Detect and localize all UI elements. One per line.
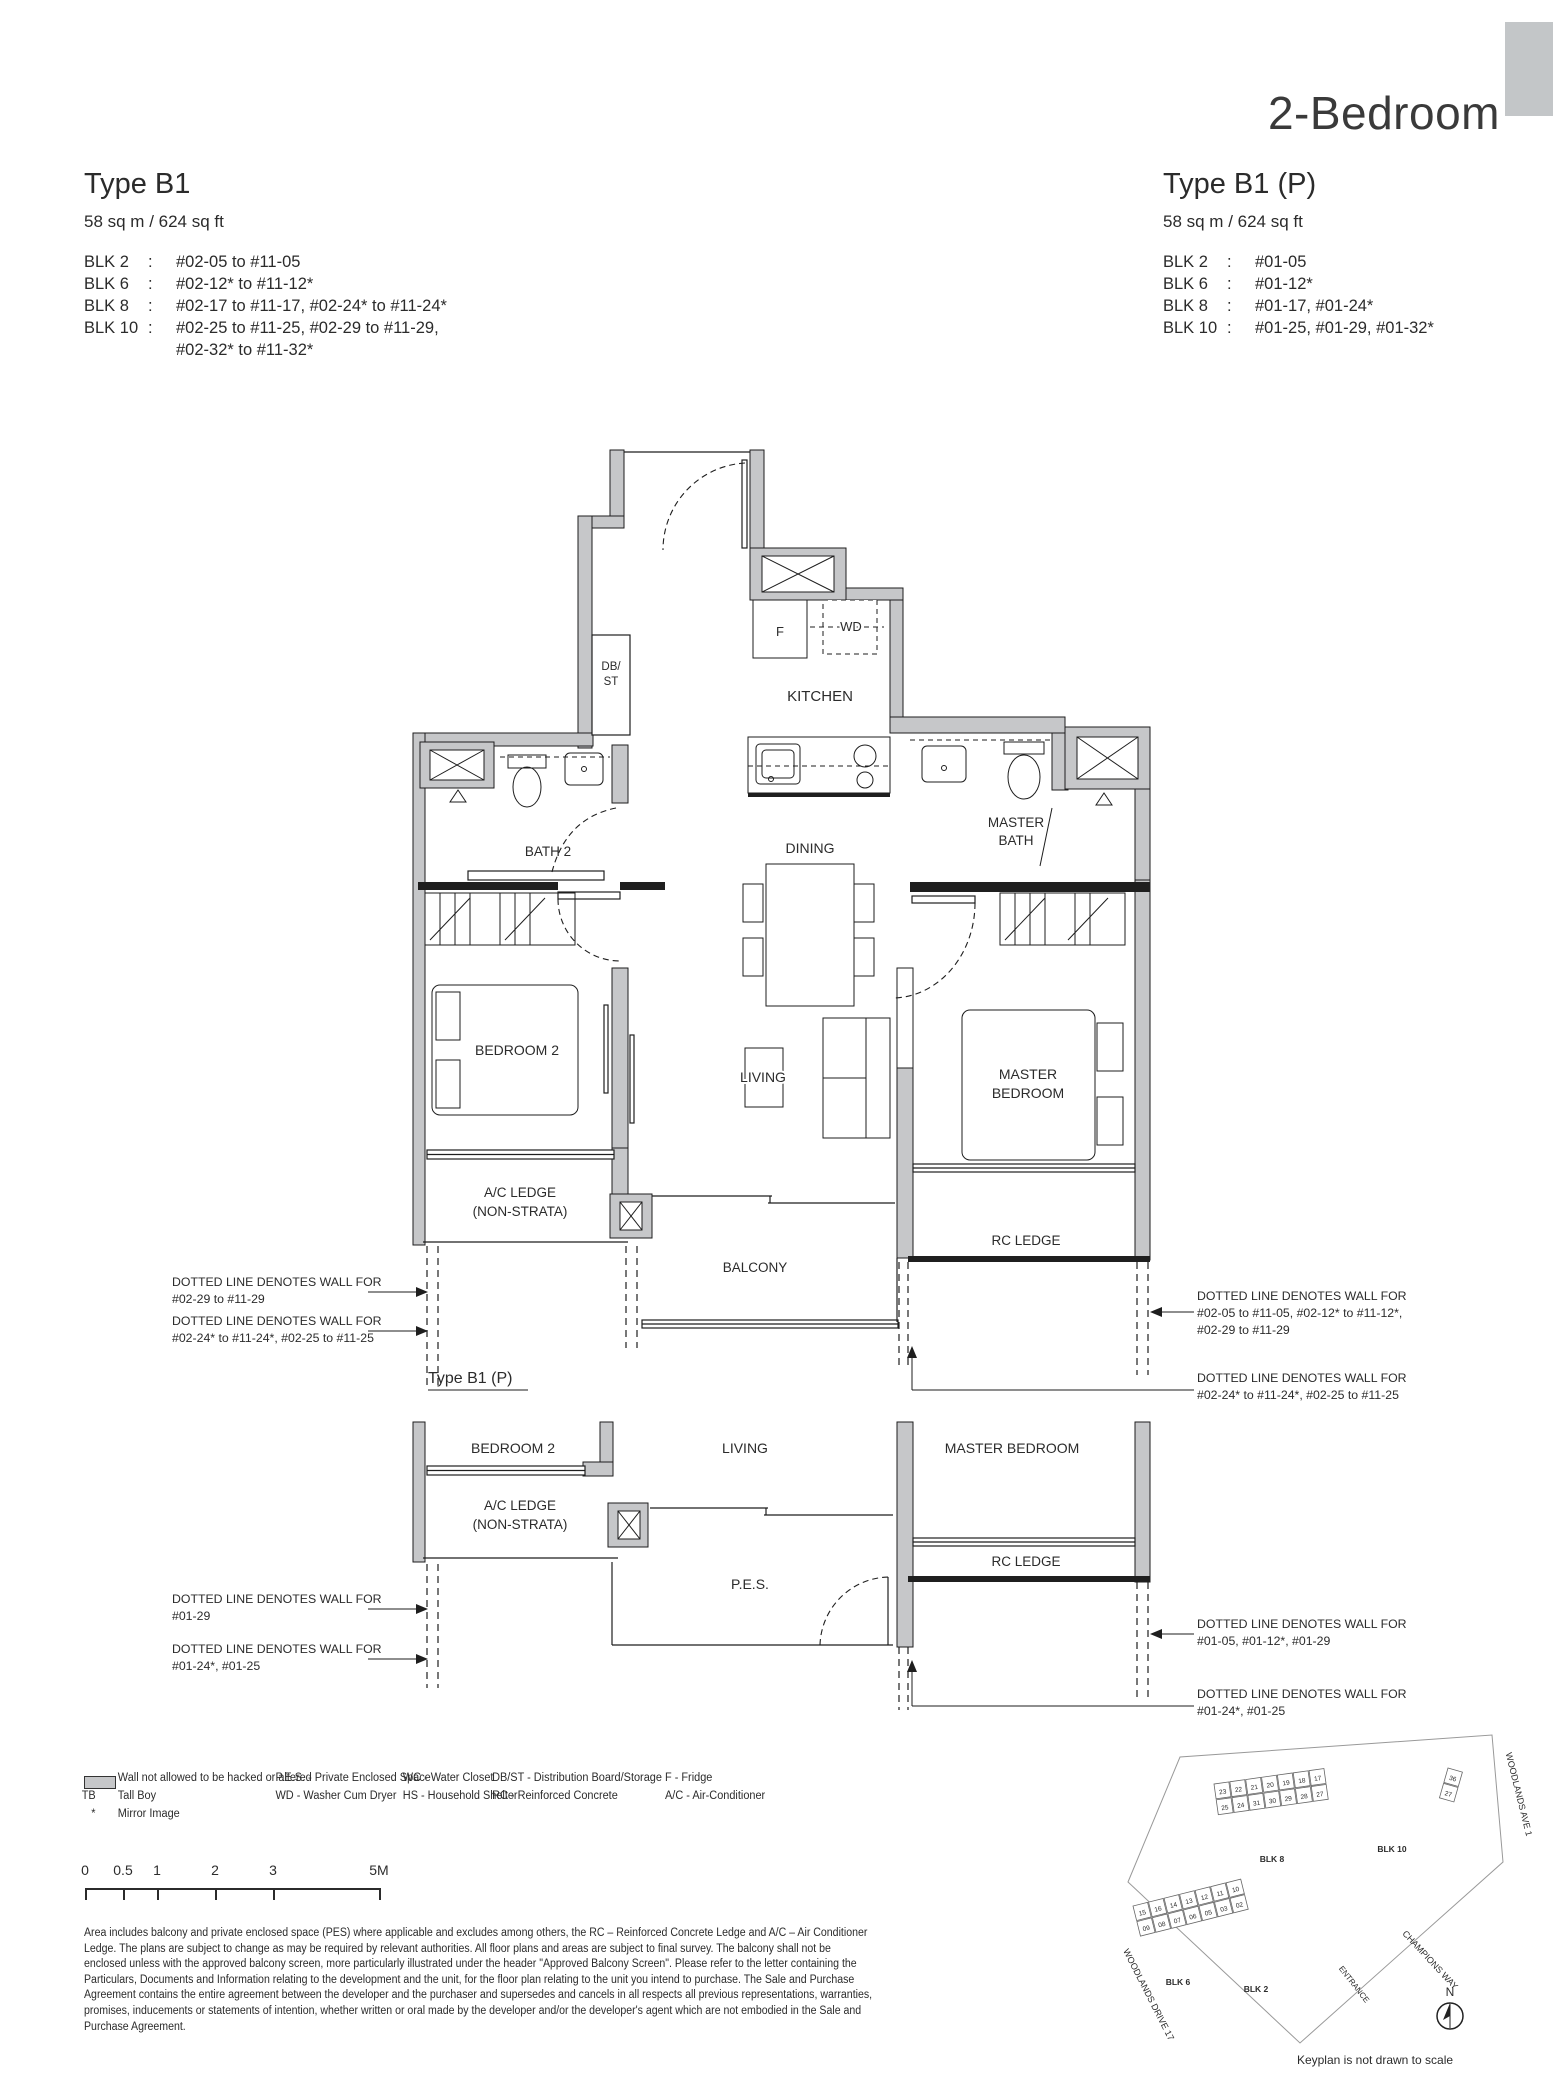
label-master-bath-1: MASTER (988, 815, 1045, 830)
legend-item: Mirror Image (118, 1808, 180, 1820)
ac-ledge-boxes (608, 1503, 648, 1547)
block-units: #01-25, #01-29, #01-32* (1255, 317, 1434, 339)
block-units: #02-05 to #11-05 (176, 251, 300, 273)
label-pes: P.E.S. (731, 1576, 769, 1592)
block-row: BLK 8:#01-17, #01-24* (1163, 295, 1434, 317)
block-label: BLK 10 (1163, 317, 1227, 339)
keyplan-units: 2322212019181725243130292827151614131211… (1133, 1768, 1462, 1936)
legend-item: Tall Boy (118, 1790, 156, 1802)
label-master-bath-2: BATH (998, 833, 1033, 848)
bedroom2-door-arc (558, 899, 620, 961)
annotation-text: #02-29 to #11-29 (172, 1292, 265, 1306)
svg-text:21: 21 (1250, 1784, 1259, 1792)
label-rc-ledge: RC LEDGE (991, 1233, 1060, 1248)
corner-tab (1505, 22, 1553, 116)
label-bedroom2: BEDROOM 2 (471, 1440, 555, 1456)
scale-tick (157, 1888, 159, 1900)
keyplan-blk10: BLK 10 (1377, 1844, 1407, 1854)
page-title: 2-Bedroom (1268, 86, 1500, 140)
label-st: ST (604, 676, 619, 688)
svg-text:31: 31 (1253, 1800, 1262, 1808)
label-wd: WD (840, 619, 862, 634)
annotation-text: DOTTED LINE DENOTES WALL FOR (1197, 1371, 1407, 1385)
block-units: #01-17, #01-24* (1255, 295, 1373, 317)
annotation-text: DOTTED LINE DENOTES WALL FOR (1197, 1617, 1407, 1631)
scale-tick (123, 1888, 125, 1900)
label-db: DB/ (601, 661, 621, 673)
annotation-text: #01-05, #01-12*, #01-29 (1197, 1634, 1330, 1648)
unit-blocks-b1: BLK 2:#02-05 to #11-05 BLK 6:#02-12* to … (84, 251, 447, 361)
unit-title-b1p: Type B1 (P) (1163, 168, 1316, 201)
block-units-line2: #02-32* to #11-32* (176, 339, 447, 361)
subplan-b1p: BEDROOM 2 LIVING MASTER BEDROOM A/C LEDG… (0, 1400, 1553, 1730)
legend-item: DB/ST - Distribution Board/Storage (492, 1772, 662, 1784)
block-label: BLK 2 (84, 251, 148, 273)
annotation-text: #02-24* to #11-24*, #02-25 to #11-25 (172, 1331, 374, 1345)
label-living: LIVING (722, 1440, 768, 1456)
annotation-text: DOTTED LINE DENOTES WALL FOR (172, 1275, 382, 1289)
keyplan-blk2: BLK 2 (1244, 1984, 1269, 1994)
colon: : (148, 251, 176, 273)
colon: : (1227, 295, 1255, 317)
annotations-sub: DOTTED LINE DENOTES WALL FOR #01-29 DOTT… (172, 1592, 1407, 1718)
block-row: BLK 6:#01-12* (1163, 273, 1434, 295)
scale-tick (379, 1888, 381, 1900)
road-woodlands-ave1: WOODLANDS AVE 1 (1504, 1751, 1534, 1837)
unit-title-b1: Type B1 (84, 168, 190, 201)
annotation-text: #02-05 to #11-05, #02-12* to #11-12*, (1197, 1306, 1402, 1320)
annotation-text: DOTTED LINE DENOTES WALL FOR (172, 1592, 382, 1606)
scale-tick (215, 1888, 217, 1900)
block-units: #02-25 to #11-25, #02-29 to #11-29, (176, 317, 439, 339)
legend-item: WD - Washer Cum Dryer (276, 1790, 397, 1802)
svg-text:23: 23 (1219, 1788, 1228, 1796)
annotation-text: #01-24*, #01-25 (1197, 1704, 1285, 1718)
block-label: BLK 8 (1163, 295, 1227, 317)
svg-text:24: 24 (1237, 1802, 1246, 1810)
legend-key: * (91, 1808, 95, 1820)
pes-door-arc (820, 1577, 890, 1645)
legend-item: RC - Reinforced Concrete (492, 1790, 618, 1802)
annotations-main: DOTTED LINE DENOTES WALL FOR #02-29 to #… (172, 1275, 1407, 1402)
scale-tick-label: 3 (269, 1862, 277, 1878)
colon: : (1227, 317, 1255, 339)
legend-item: A/C - Air-Conditioner (665, 1790, 765, 1802)
svg-text:29: 29 (1284, 1795, 1293, 1803)
svg-text:28: 28 (1300, 1793, 1309, 1801)
block-units: #02-12* to #11-12* (176, 273, 313, 295)
label-master-bedroom-1: MASTER (999, 1066, 1057, 1082)
disclaimer: Area includes balcony and private enclos… (84, 1926, 872, 2035)
entry-door-arc (663, 463, 745, 550)
unit-area-b1: 58 sq m / 624 sq ft (84, 212, 224, 232)
annotation-text: DOTTED LINE DENOTES WALL FOR (172, 1642, 382, 1656)
label-fridge: F (776, 624, 784, 639)
main-floorplan: F WD DB/ ST KITCHEN DINING BATH 2 MASTER… (0, 440, 1553, 1410)
floorplan-page: 2-Bedroom Type B1 58 sq m / 624 sq ft BL… (0, 0, 1553, 2100)
door-arcs (820, 1577, 890, 1645)
keyplan: 2322212019181725243130292827151614131211… (1090, 1725, 1553, 2075)
north-indicator: N (1437, 1985, 1463, 2029)
keyplan-unit-cluster: 2322212019181725243130292827 (1214, 1769, 1328, 1815)
block-label: BLK 6 (1163, 273, 1227, 295)
label-living: LIVING (740, 1069, 786, 1085)
legend-wall-swatch (84, 1776, 116, 1789)
legend-item: F - Fridge (665, 1772, 712, 1784)
road-woodlands-dr17: WOODLANDS DRIVE 17 (1121, 1947, 1176, 2042)
label-master-bedroom: MASTER BEDROOM (945, 1440, 1080, 1456)
label-ac-ledge-2: (NON-STRATA) (473, 1204, 568, 1219)
annotation-text: #01-24*, #01-25 (172, 1659, 260, 1673)
dotted-walls (427, 1246, 1148, 1386)
scale-tick-label: 2 (211, 1862, 219, 1878)
block-row: BLK 8:#02-17 to #11-17, #02-24* to #11-2… (84, 295, 447, 317)
block-units: #01-05 (1255, 251, 1306, 273)
subplan-title: Type B1 (P) (428, 1370, 512, 1387)
colon: : (1227, 251, 1255, 273)
annotation-text: DOTTED LINE DENOTES WALL FOR (172, 1314, 382, 1328)
keyplan-unit-cluster: 1516141312111009080706050302 (1133, 1879, 1248, 1936)
label-ac-ledge-1: A/C LEDGE (484, 1185, 556, 1200)
colon: : (1227, 273, 1255, 295)
hollow-wall (897, 968, 913, 1068)
compass-needle-head (1443, 2003, 1450, 2020)
keyplan-blk6: BLK 6 (1166, 1977, 1191, 1987)
keyplan-unit-cluster: 3627 (1439, 1768, 1462, 1802)
label-master-bedroom-2: BEDROOM (992, 1085, 1064, 1101)
disclaimer-line: Ledge. The plans are subject to change a… (84, 1942, 872, 1958)
block-units: #02-17 to #11-17, #02-24* to #11-24* (176, 295, 447, 317)
block-label: BLK 10 (84, 317, 148, 339)
label-ac-ledge-1: A/C LEDGE (484, 1498, 556, 1513)
legend-item: WC - Water Closet (403, 1772, 494, 1784)
svg-text:25: 25 (1221, 1804, 1230, 1812)
label-dining: DINING (786, 840, 835, 856)
colon: : (148, 295, 176, 317)
annotation-text: #02-29 to #11-29 (1197, 1323, 1290, 1337)
keyplan-blk8: BLK 8 (1260, 1854, 1285, 1864)
disclaimer-line: Area includes balcony and private enclos… (84, 1926, 872, 1942)
scale-tick-label: 5M (369, 1862, 388, 1878)
label-balcony: BALCONY (723, 1260, 788, 1275)
label-kitchen: KITCHEN (787, 688, 853, 705)
legend-key: TB (82, 1790, 96, 1802)
disclaimer-line: promises, inducements or statements of i… (84, 2004, 872, 2020)
block-label: BLK 8 (84, 295, 148, 317)
block-row: BLK 10:#02-25 to #11-25, #02-29 to #11-2… (84, 317, 447, 339)
dotted-walls (427, 1564, 1148, 1710)
scale-tick (273, 1888, 275, 1900)
label-bedroom2: BEDROOM 2 (475, 1042, 559, 1058)
svg-text:27: 27 (1316, 1791, 1325, 1799)
svg-text:30: 30 (1268, 1798, 1277, 1806)
scale-tick (85, 1888, 87, 1900)
block-row: BLK 6:#02-12* to #11-12* (84, 273, 447, 295)
colon: : (148, 273, 176, 295)
svg-text:17: 17 (1314, 1775, 1323, 1783)
block-units: #01-12* (1255, 273, 1313, 295)
svg-text:19: 19 (1282, 1779, 1291, 1787)
disclaimer-line: Agreement contains the entire agreement … (84, 1988, 872, 2004)
scale-bar-line (85, 1888, 380, 1890)
annotation-text: DOTTED LINE DENOTES WALL FOR (1197, 1687, 1407, 1701)
annotation-text: DOTTED LINE DENOTES WALL FOR (1197, 1289, 1407, 1303)
svg-text:22: 22 (1235, 1786, 1244, 1794)
block-label: BLK 6 (84, 273, 148, 295)
label-bath2: BATH 2 (525, 844, 571, 859)
unit-blocks-b1p: BLK 2:#01-05 BLK 6:#01-12* BLK 8:#01-17,… (1163, 251, 1434, 339)
label-rc-ledge: RC LEDGE (991, 1554, 1060, 1569)
black-walls (908, 1576, 1150, 1582)
annotation-text: #01-29 (172, 1609, 210, 1623)
block-label: BLK 2 (1163, 251, 1227, 273)
block-row: BLK 10:#01-25, #01-29, #01-32* (1163, 317, 1434, 339)
unit-area-b1p: 58 sq m / 624 sq ft (1163, 212, 1303, 232)
disclaimer-line: enclosed unless with the approved balcon… (84, 1957, 872, 1973)
disclaimer-line: Particulars, Documents and Information r… (84, 1973, 872, 1989)
scale-tick-label: 0 (81, 1862, 89, 1878)
scale-tick-label: 0.5 (113, 1862, 132, 1878)
svg-text:20: 20 (1266, 1782, 1275, 1790)
block-row: BLK 2:#02-05 to #11-05 (84, 251, 447, 273)
block-row: BLK 2:#01-05 (1163, 251, 1434, 273)
bath2-door-arc (552, 808, 616, 872)
room-labels: BEDROOM 2 LIVING MASTER BEDROOM A/C LEDG… (471, 1440, 1079, 1592)
north-label: N (1446, 1985, 1455, 1999)
label-ac-ledge-2: (NON-STRATA) (473, 1517, 568, 1532)
road-champions-way: CHAMPIONS WAY (1400, 1929, 1459, 1992)
disclaimer-line: Purchase Agreement. (84, 2020, 872, 2036)
keyplan-caption: Keyplan is not drawn to scale (1297, 2053, 1453, 2067)
colon: : (148, 317, 176, 339)
svg-text:18: 18 (1298, 1777, 1307, 1785)
scale-tick-label: 1 (153, 1862, 161, 1878)
